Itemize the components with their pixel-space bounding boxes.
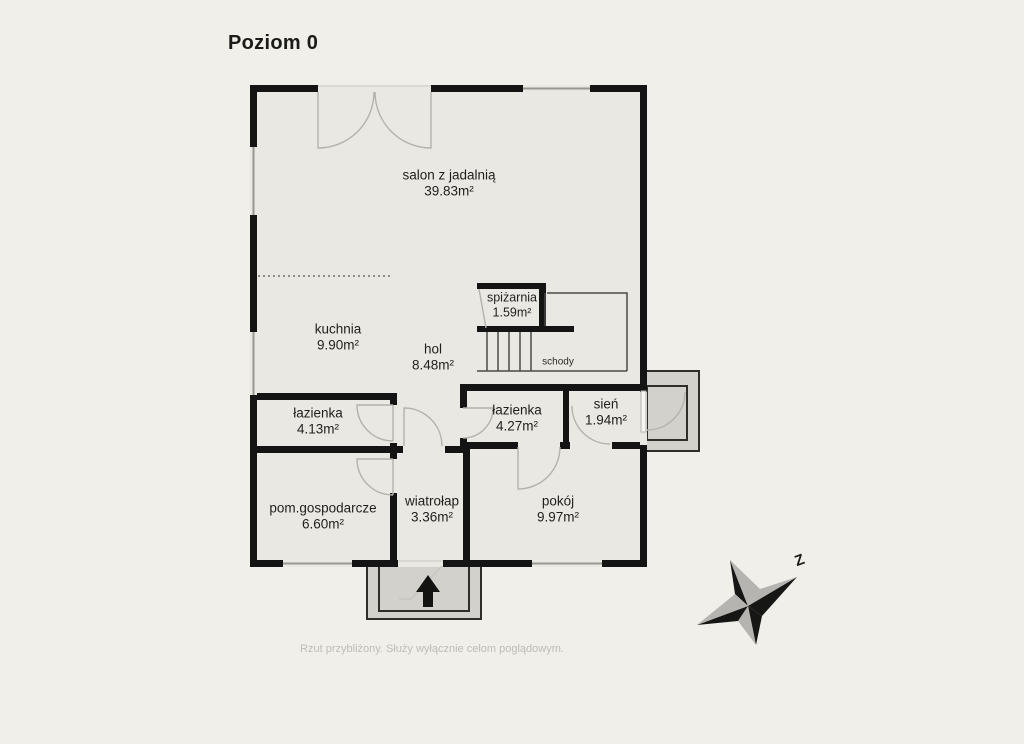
room-label-sien: sień 1.94m² (585, 396, 627, 427)
room-label-spizarnia: spiżarnia 1.59m² (487, 291, 537, 320)
room-label-hol: hol 8.48m² (412, 341, 454, 372)
side-porch (645, 371, 699, 451)
room-label-lazienka-1: łazienka 4.13m² (293, 405, 343, 436)
room-label-pom-gospodarcze: pom.gospodarcze 6.60m² (269, 500, 376, 531)
compass-rose-icon (697, 560, 797, 645)
room-label-wiatrolap: wiatrołap 3.36m² (405, 493, 459, 524)
open-door-leaf (641, 391, 646, 432)
room-label-lazienka-2: łazienka 4.27m² (492, 402, 542, 433)
room-label-kuchnia: kuchnia 9.90m² (315, 321, 362, 352)
floor-plan-drawing (0, 0, 1024, 744)
room-label-salon: salon z jadalnią 39.83m² (402, 167, 495, 198)
room-label-pokoj: pokój 9.97m² (537, 493, 579, 524)
disclaimer-note: Rzut przybliżony. Służy wyłącznie celom … (232, 643, 632, 655)
stairs-label: schody (542, 357, 574, 368)
